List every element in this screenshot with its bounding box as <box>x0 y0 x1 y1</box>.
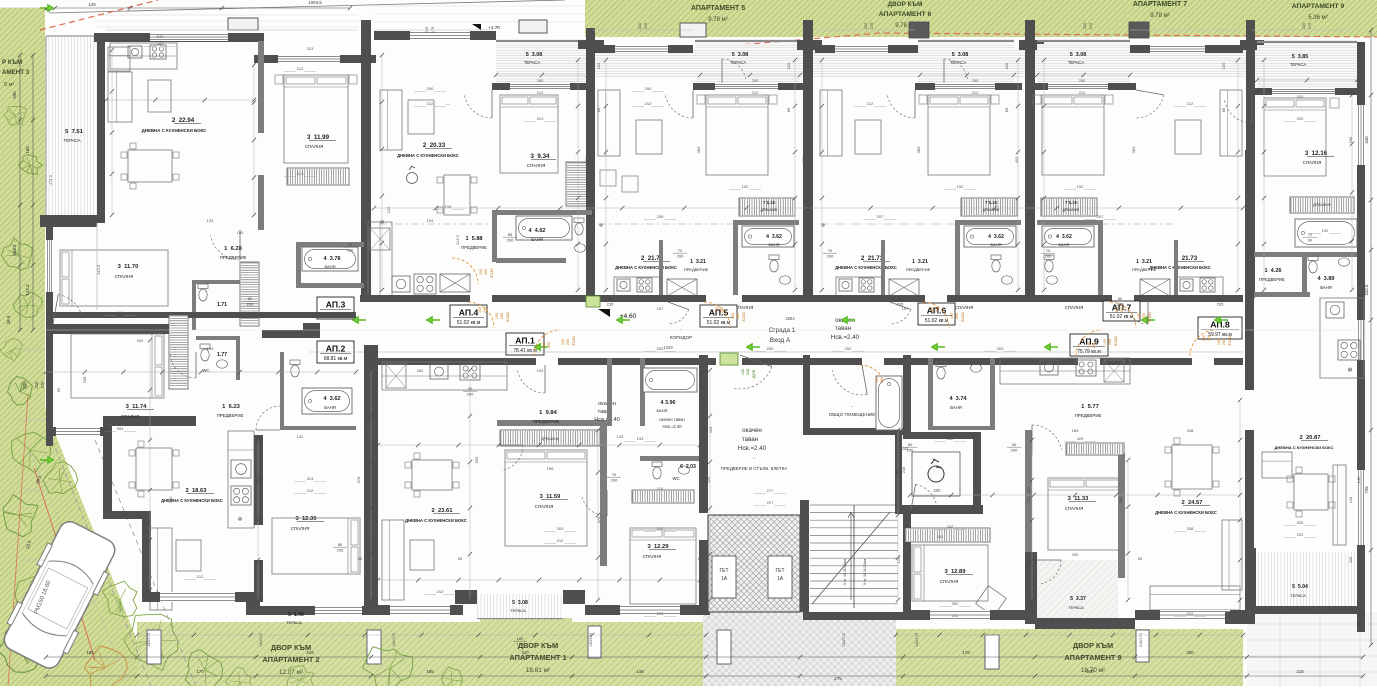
svg-text:5 3.08: 5 3.08 <box>1070 52 1087 58</box>
svg-text:170: 170 <box>869 22 874 29</box>
svg-text:210: 210 <box>34 381 39 389</box>
svg-text:100: 100 <box>1202 335 1206 341</box>
svg-text:6 2.03: 6 2.03 <box>680 464 696 470</box>
svg-text:573: 573 <box>1244 156 1249 163</box>
svg-text:Нсв.=2.40: Нсв.=2.40 <box>738 445 767 452</box>
svg-text:5 3.08: 5 3.08 <box>526 52 543 58</box>
svg-text:218: 218 <box>306 650 314 655</box>
svg-text:180: 180 <box>517 636 524 641</box>
svg-text:192: 192 <box>957 184 964 189</box>
svg-text:100: 100 <box>1087 342 1091 348</box>
svg-text:АП.3: АП.3 <box>326 300 346 310</box>
svg-text:Е130: Е130 <box>505 312 510 322</box>
svg-text:ПРЕДВЕРИЕ: ПРЕДВЕРИЕ <box>461 245 487 250</box>
svg-text:243.5: 243.5 <box>96 265 101 275</box>
svg-text:3 11.74: 3 11.74 <box>126 404 147 410</box>
svg-text:ТЕРАСА: ТЕРАСА <box>950 60 966 65</box>
svg-text:5 3.37: 5 3.37 <box>1070 596 1086 602</box>
svg-text:200: 200 <box>1222 339 1226 345</box>
svg-text:122.3: 122.3 <box>25 284 30 296</box>
svg-text:WC: WC <box>673 476 680 481</box>
svg-text:9.78 м²: 9.78 м² <box>1150 13 1169 19</box>
svg-text:ТЕРАСА: ТЕРАСА <box>524 60 540 65</box>
svg-text:78.41 кв.м: 78.41 кв.м <box>513 348 537 354</box>
svg-text:200: 200 <box>677 254 684 259</box>
svg-text:220: 220 <box>424 26 429 33</box>
svg-text:АПАРТАМЕНТ 2: АПАРТАМЕНТ 2 <box>262 655 319 664</box>
svg-text:БАНЯ: БАНЯ <box>324 405 336 410</box>
svg-text:212: 212 <box>645 101 652 106</box>
svg-text:❄: ❄ <box>821 222 826 229</box>
svg-text:100: 100 <box>875 377 879 383</box>
svg-text:АПАРТАМЕНТ 5: АПАРТАМЕНТ 5 <box>691 5 745 12</box>
svg-text:СПАЛНЯ: СПАЛНЯ <box>1065 305 1084 310</box>
svg-text:3 11.70: 3 11.70 <box>118 264 139 270</box>
svg-text:194: 194 <box>427 218 434 223</box>
svg-text:194: 194 <box>117 310 124 315</box>
svg-text:735: 735 <box>1364 486 1369 494</box>
svg-text:170: 170 <box>430 26 435 33</box>
svg-text:100: 100 <box>478 307 482 313</box>
svg-text:СПАЛНЯ: СПАЛНЯ <box>305 144 324 149</box>
svg-text:212: 212 <box>427 101 434 106</box>
svg-text:200: 200 <box>347 248 354 253</box>
svg-text:БАНЯ: БАНЯ <box>991 242 1002 247</box>
svg-text:393: 393 <box>1118 497 1123 504</box>
svg-text:540: 540 <box>1246 496 1251 503</box>
svg-text:690: 690 <box>12 91 17 99</box>
svg-text:220: 220 <box>1086 669 1094 674</box>
svg-text:7 1.15: 7 1.15 <box>1065 200 1077 205</box>
svg-text:1 5.88: 1 5.88 <box>465 236 482 242</box>
svg-text:303: 303 <box>557 526 564 531</box>
svg-text:212: 212 <box>437 589 444 594</box>
svg-text:❄: ❄ <box>237 516 242 523</box>
svg-text:573: 573 <box>801 156 806 163</box>
svg-text:298: 298 <box>82 376 87 383</box>
svg-text:4 3.62: 4 3.62 <box>766 234 782 240</box>
svg-text:383: 383 <box>1131 146 1136 153</box>
svg-text:176: 176 <box>962 650 970 655</box>
svg-text:120: 120 <box>1004 62 1009 69</box>
svg-text:250: 250 <box>1186 650 1194 655</box>
svg-text:70: 70 <box>1046 248 1051 253</box>
svg-text:310: 310 <box>168 496 173 503</box>
svg-text:224: 224 <box>804 556 809 563</box>
svg-text:100: 100 <box>1103 339 1107 345</box>
svg-text:4 4.62: 4 4.62 <box>528 228 545 234</box>
svg-text:212: 212 <box>952 613 959 618</box>
svg-text:200: 200 <box>1108 339 1112 345</box>
svg-text:ДНЕВНА С КУХНЕНСКИ БОКС: ДНЕВНА С КУХНЕНСКИ БОКС <box>615 265 677 270</box>
svg-text:СПАЛНЯ: СПАЛНЯ <box>535 504 554 509</box>
svg-text:Р КЪМ: Р КЪМ <box>2 59 22 66</box>
svg-text:СПАЛНЯ: СПАЛНЯ <box>643 554 662 559</box>
svg-text:51.02 кв.м: 51.02 кв.м <box>1110 314 1134 320</box>
svg-text:200: 200 <box>720 307 724 313</box>
svg-text:70: 70 <box>678 248 683 253</box>
svg-text:252: 252 <box>845 346 852 351</box>
svg-text:122.3: 122.3 <box>48 295 53 305</box>
svg-text:550: 550 <box>474 456 479 463</box>
svg-text:196: 196 <box>547 466 554 471</box>
svg-text:185: 185 <box>426 669 434 674</box>
svg-text:170: 170 <box>40 381 45 389</box>
svg-text:3 11.99: 3 11.99 <box>307 134 330 141</box>
svg-text:212: 212 <box>752 90 759 95</box>
svg-text:ДРЕШНИК: ДРЕШНИК <box>1313 203 1332 207</box>
svg-text:218: 218 <box>896 467 901 474</box>
svg-text:ТЕРАСА: ТЕРАСА <box>510 608 526 613</box>
svg-text:157: 157 <box>902 306 909 311</box>
svg-text:1.77: 1.77 <box>217 352 227 358</box>
svg-text:4 3.96: 4 3.96 <box>661 400 676 406</box>
svg-text:90: 90 <box>468 386 473 391</box>
svg-text:200: 200 <box>1142 313 1146 319</box>
svg-text:80: 80 <box>898 296 903 301</box>
svg-text:ДНЕВНА С КУХНЕНСКИ БОКС: ДНЕВНА С КУХНЕНСКИ БОКС <box>142 128 207 133</box>
svg-text:133: 133 <box>617 434 624 439</box>
svg-text:2 22.94: 2 22.94 <box>172 117 195 124</box>
svg-text:51.02 кв.м: 51.02 кв.м <box>457 320 481 326</box>
svg-text:СПАЛНЯ: СПАЛНЯ <box>115 274 134 279</box>
svg-text:5 3.85: 5 3.85 <box>1292 54 1309 60</box>
svg-text:212: 212 <box>867 101 874 106</box>
svg-text:ПРЕДВЕРИЕ: ПРЕДВЕРИЕ <box>217 413 244 418</box>
svg-text:453: 453 <box>584 156 589 163</box>
svg-text:80: 80 <box>908 442 913 447</box>
svg-text:573.5: 573.5 <box>96 125 101 135</box>
svg-text:100: 100 <box>1115 307 1119 313</box>
svg-text:БАНЯ: БАНЯ <box>950 405 962 410</box>
svg-text:170: 170 <box>101 432 108 437</box>
svg-text:ТЕРАСА: ТЕРАСА <box>286 620 302 625</box>
svg-text:192: 192 <box>742 184 749 189</box>
svg-text:165: 165 <box>25 146 30 154</box>
svg-text:ДВОР КЪМ: ДВОР КЪМ <box>888 1 923 8</box>
svg-text:18.81 м²: 18.81 м² <box>526 667 550 674</box>
svg-text:ТЕРАСА: ТЕРАСА <box>730 60 746 65</box>
svg-text:200: 200 <box>467 392 474 397</box>
svg-text:5 3.08: 5 3.08 <box>952 52 969 58</box>
svg-text:133: 133 <box>207 218 214 223</box>
svg-text:100: 100 <box>495 313 499 319</box>
svg-text:192: 192 <box>1322 228 1329 233</box>
svg-text:220: 220 <box>863 22 868 29</box>
svg-text:546: 546 <box>366 527 371 534</box>
svg-text:5 7.51: 5 7.51 <box>65 129 84 135</box>
svg-text:1А: 1А <box>721 576 728 582</box>
svg-text:4 3.62: 4 3.62 <box>323 396 340 402</box>
svg-text:❄: ❄ <box>1347 366 1353 374</box>
svg-text:200: 200 <box>934 488 942 493</box>
svg-text:320: 320 <box>1297 94 1304 99</box>
svg-text:68.81 кв.м: 68.81 кв.м <box>324 356 348 362</box>
svg-text:40: 40 <box>1012 442 1017 447</box>
svg-text:235: 235 <box>1217 302 1224 307</box>
svg-text:Е130: Е130 <box>1227 336 1232 346</box>
svg-text:5 5.04: 5 5.04 <box>1292 584 1308 590</box>
svg-text:222: 222 <box>1297 532 1304 537</box>
svg-text:ДНЕВНА С КУХНЕНСКИ БОКС: ДНЕВНА С КУХНЕНСКИ БОКС <box>1149 265 1211 270</box>
svg-text:3 12.30: 3 12.30 <box>296 516 317 522</box>
svg-text:65: 65 <box>786 108 791 112</box>
svg-text:3 11.59: 3 11.59 <box>540 494 561 500</box>
svg-text:345: 345 <box>1026 497 1031 504</box>
svg-text:100: 100 <box>542 342 546 348</box>
svg-text:200: 200 <box>1120 307 1124 313</box>
svg-text:65: 65 <box>596 108 601 112</box>
svg-text:146: 146 <box>1356 476 1361 483</box>
svg-text:ПРЕДВЕРИЕ И СТЪЛБ. КЛЕТКА: ПРЕДВЕРИЕ И СТЪЛБ. КЛЕТКА <box>721 466 787 471</box>
svg-text:5 3.08: 5 3.08 <box>512 600 528 606</box>
svg-text:9 ст. 16.11/28см: 9 ст. 16.11/28см <box>863 558 867 585</box>
svg-text:471.5: 471.5 <box>48 175 53 185</box>
svg-text:ПРЕДВЕРИЕ: ПРЕДВЕРИЕ <box>220 255 247 260</box>
svg-text:ПРЕДВЕРИЕ: ПРЕДВЕРИЕ <box>1075 413 1102 418</box>
svg-text:ПРЕДВЕРИЕ: ПРЕДВЕРИЕ <box>906 267 931 272</box>
svg-text:146: 146 <box>1348 497 1353 504</box>
svg-text:ДНЕВНА С КУХНЕНСКИ БОКС: ДНЕВНА С КУХНЕНСКИ БОКС <box>835 265 897 270</box>
svg-text:242: 242 <box>937 534 944 539</box>
svg-text:429: 429 <box>1077 436 1084 441</box>
svg-text:100: 100 <box>950 313 954 319</box>
svg-text:155: 155 <box>251 606 258 611</box>
svg-text:170: 170 <box>643 22 648 29</box>
svg-text:200: 200 <box>955 313 959 319</box>
svg-text:БАНЯ: БАНЯ <box>325 264 336 269</box>
svg-text:2 20.87: 2 20.87 <box>1300 435 1321 441</box>
svg-text:ТЕРАСА: ТЕРАСА <box>1068 60 1084 65</box>
svg-text:ДНЕВНА С КУХНЕНСКИ БОКС: ДНЕВНА С КУХНЕНСКИ БОКС <box>1275 445 1334 450</box>
svg-text:ДВОР КЪМ: ДВОР КЪМ <box>518 641 558 650</box>
svg-text:290: 290 <box>427 86 434 91</box>
svg-text:192: 192 <box>1077 184 1084 189</box>
svg-text:185: 185 <box>86 650 94 655</box>
svg-text:СПАЛНЯ: СПАЛНЯ <box>121 414 140 419</box>
svg-text:65: 65 <box>1138 556 1143 561</box>
svg-text:65: 65 <box>358 556 363 561</box>
svg-text:АПАРТАМЕНТ 6: АПАРТАМЕНТ 6 <box>879 11 932 18</box>
svg-text:+1.70: +1.70 <box>488 25 500 30</box>
svg-text:1 9.84: 1 9.84 <box>539 410 558 416</box>
svg-text:КОРИДОР: КОРИДОР <box>670 335 692 340</box>
svg-text:Е130: Е130 <box>741 312 746 322</box>
svg-text:100: 100 <box>1217 339 1221 345</box>
svg-text:200: 200 <box>484 269 488 275</box>
svg-text:Е130: Е130 <box>571 336 576 346</box>
svg-text:окачен: окачен <box>742 427 762 434</box>
svg-text:СПАЛНЯ: СПАЛНЯ <box>955 305 974 310</box>
svg-text:345: 345 <box>1026 486 1031 493</box>
svg-text:207: 207 <box>877 214 884 219</box>
svg-text:200: 200 <box>736 313 740 319</box>
svg-text:АМЕНТ 3: АМЕНТ 3 <box>2 69 30 76</box>
svg-text:4 3.74: 4 3.74 <box>949 396 967 402</box>
svg-text:132: 132 <box>297 434 304 439</box>
svg-text:Вход А: Вход А <box>770 337 791 344</box>
svg-text:200: 200 <box>483 307 487 313</box>
svg-text:200: 200 <box>827 254 834 259</box>
svg-text:1 6.23: 1 6.23 <box>222 404 241 410</box>
svg-text:290: 290 <box>645 86 652 91</box>
svg-text:Е130: Е130 <box>960 312 965 322</box>
svg-text:1 5.77: 1 5.77 <box>1081 404 1099 410</box>
svg-text:290: 290 <box>1072 552 1079 557</box>
svg-text:Нсв.=2.40: Нсв.=2.40 <box>662 424 682 429</box>
svg-text:СПАЛНЯ: СПАЛНЯ <box>1303 160 1322 165</box>
svg-text:120: 120 <box>741 369 745 375</box>
svg-text:157: 157 <box>657 306 664 311</box>
svg-text:90: 90 <box>1308 238 1313 243</box>
svg-text:200: 200 <box>1045 254 1052 259</box>
svg-text:243.5: 243.5 <box>455 235 460 245</box>
svg-text:313: 313 <box>537 116 544 121</box>
svg-text:2 21.73: 2 21.73 <box>1175 255 1198 262</box>
svg-text:120: 120 <box>1221 62 1226 69</box>
svg-text:АПАРТАМЕНТ 9: АПАРТАМЕНТ 9 <box>1292 3 1345 10</box>
svg-text:ПРЕДВЕРИЕ: ПРЕДВЕРИЕ <box>684 267 709 272</box>
svg-text:378: 378 <box>356 476 361 483</box>
svg-text:ТЕРАСА: ТЕРАСА <box>1290 593 1306 598</box>
svg-text:200: 200 <box>507 238 514 243</box>
svg-text:240: 240 <box>746 369 750 375</box>
svg-text:7 1.15: 7 1.15 <box>763 200 775 205</box>
svg-text:ДСВ: ДСВ <box>751 370 756 379</box>
svg-text:1 3.21: 1 3.21 <box>1136 259 1152 265</box>
svg-text:3 9.34: 3 9.34 <box>531 153 550 160</box>
svg-text:ПРЕДВЕРИЕ: ПРЕДВЕРИЕ <box>533 419 560 424</box>
svg-text:таван: таван <box>835 325 851 332</box>
svg-text:212: 212 <box>297 66 304 71</box>
svg-text:5 3.08: 5 3.08 <box>732 52 749 58</box>
svg-text:433: 433 <box>366 427 371 434</box>
svg-text:170: 170 <box>517 642 524 647</box>
svg-text:383: 383 <box>696 146 701 153</box>
svg-text:378: 378 <box>596 516 601 523</box>
svg-text:3 11.33: 3 11.33 <box>1068 496 1089 502</box>
svg-text:БАНЯ: БАНЯ <box>1059 242 1070 247</box>
svg-text:445: 445 <box>1364 136 1369 144</box>
svg-text:242: 242 <box>947 524 954 529</box>
svg-text:АПАРТАМЕНТ 7: АПАРТАМЕНТ 7 <box>1133 1 1187 8</box>
svg-text:2 21.73: 2 21.73 <box>861 255 884 262</box>
svg-text:200: 200 <box>880 377 884 383</box>
svg-text:235: 235 <box>337 548 344 553</box>
svg-text:ДНЕВНА С КУХНЕНСКИ БОКС: ДНЕВНА С КУХНЕНСКИ БОКС <box>1155 510 1217 515</box>
svg-text:325: 325 <box>657 526 664 531</box>
svg-text:5.36 м²: 5.36 м² <box>1308 15 1327 21</box>
svg-text:208: 208 <box>1348 557 1353 564</box>
svg-text:170: 170 <box>1307 22 1312 29</box>
svg-text:290: 290 <box>1079 78 1086 83</box>
svg-text:БАНЯ: БАНЯ <box>531 237 543 242</box>
svg-text:таван: таван <box>742 436 758 443</box>
svg-text:Е130: Е130 <box>489 268 494 278</box>
svg-text:Е130: Е130 <box>1113 336 1118 346</box>
svg-text:100: 100 <box>715 307 719 313</box>
svg-text:ТЕРАСА: ТЕРАСА <box>1068 605 1084 610</box>
svg-text:ПРЕДВЕРИЕ: ПРЕДВЕРИЕ <box>1132 267 1157 272</box>
svg-text:5 м²: 5 м² <box>4 82 15 88</box>
svg-text:4 3.78: 4 3.78 <box>323 256 340 262</box>
svg-text:200: 200 <box>247 302 254 307</box>
svg-text:ОБЩО ПОМЕЩЕНИЕ: ОБЩО ПОМЕЩЕНИЕ <box>829 412 876 417</box>
svg-text:207: 207 <box>1097 214 1104 219</box>
svg-text:ДРЕШНИК: ДРЕШНИК <box>1063 208 1080 212</box>
svg-text:116: 116 <box>657 486 664 491</box>
svg-text:394: 394 <box>137 338 144 343</box>
svg-text:1329: 1329 <box>663 345 673 350</box>
svg-text:80: 80 <box>1118 296 1123 301</box>
svg-text:4 3.89: 4 3.89 <box>1317 276 1334 282</box>
svg-text:2 18.63: 2 18.63 <box>186 488 208 494</box>
svg-text:200: 200 <box>611 478 618 483</box>
svg-text:313: 313 <box>307 476 314 481</box>
svg-text:205: 205 <box>22 381 27 389</box>
svg-text:БАНЯ: БАНЯ <box>769 242 780 247</box>
svg-text:1.71: 1.71 <box>217 302 227 308</box>
svg-text:583.3: 583.3 <box>12 244 17 256</box>
svg-text:222: 222 <box>1187 611 1194 616</box>
svg-text:WC: WC <box>203 368 210 373</box>
svg-text:242: 242 <box>157 41 164 46</box>
svg-text:4 3.62: 4 3.62 <box>988 234 1004 240</box>
svg-text:1 4.26: 1 4.26 <box>1264 268 1281 274</box>
svg-text:Сграда 1: Сграда 1 <box>769 327 796 334</box>
svg-text:160: 160 <box>101 426 108 431</box>
svg-text:100: 100 <box>537 368 544 373</box>
svg-text:194: 194 <box>207 346 214 351</box>
svg-text:65: 65 <box>1004 108 1009 112</box>
svg-text:1А: 1А <box>777 576 784 582</box>
svg-text:212: 212 <box>197 574 204 579</box>
svg-text:288: 288 <box>1348 136 1353 143</box>
svg-text:АПАРТАМЕНТ 1: АПАРТАМЕНТ 1 <box>509 653 566 662</box>
svg-text:200: 200 <box>1207 335 1211 341</box>
svg-text:194: 194 <box>445 204 452 209</box>
svg-text:222: 222 <box>657 611 664 616</box>
svg-text:80: 80 <box>248 296 253 301</box>
svg-text:277: 277 <box>767 488 774 493</box>
svg-text:СПАЛНЯ: СПАЛНЯ <box>291 526 310 531</box>
svg-text:АП.1: АП.1 <box>515 336 535 346</box>
svg-text:250: 250 <box>767 346 774 351</box>
svg-text:212: 212 <box>1187 101 1194 106</box>
svg-text:2 20.33: 2 20.33 <box>423 142 446 149</box>
svg-text:70: 70 <box>612 472 617 477</box>
svg-text:260: 260 <box>417 368 424 373</box>
svg-text:АПАРТАМЕНТ 9: АПАРТАМЕНТ 9 <box>1064 653 1121 662</box>
svg-text:9.78 м²: 9.78 м² <box>708 17 727 23</box>
svg-text:235: 235 <box>607 302 614 307</box>
svg-text:170: 170 <box>196 669 204 674</box>
svg-text:200: 200 <box>1092 342 1096 348</box>
svg-text:242: 242 <box>386 206 391 213</box>
svg-text:9 ст. 16.11/28см: 9 ст. 16.11/28см <box>843 558 847 585</box>
svg-text:100: 100 <box>731 313 735 319</box>
svg-text:120: 120 <box>786 62 791 69</box>
svg-text:220: 220 <box>637 22 642 29</box>
svg-text:242: 242 <box>902 446 909 451</box>
svg-text:573: 573 <box>364 156 369 163</box>
svg-text:5 1.40: 5 1.40 <box>288 612 304 618</box>
svg-text:148: 148 <box>636 669 644 674</box>
svg-text:ДВОР КЪМ: ДВОР КЪМ <box>1073 641 1113 650</box>
svg-text:БАНЯ: БАНЯ <box>1320 285 1332 290</box>
svg-text:218: 218 <box>901 466 906 473</box>
svg-text:220: 220 <box>1301 22 1306 29</box>
